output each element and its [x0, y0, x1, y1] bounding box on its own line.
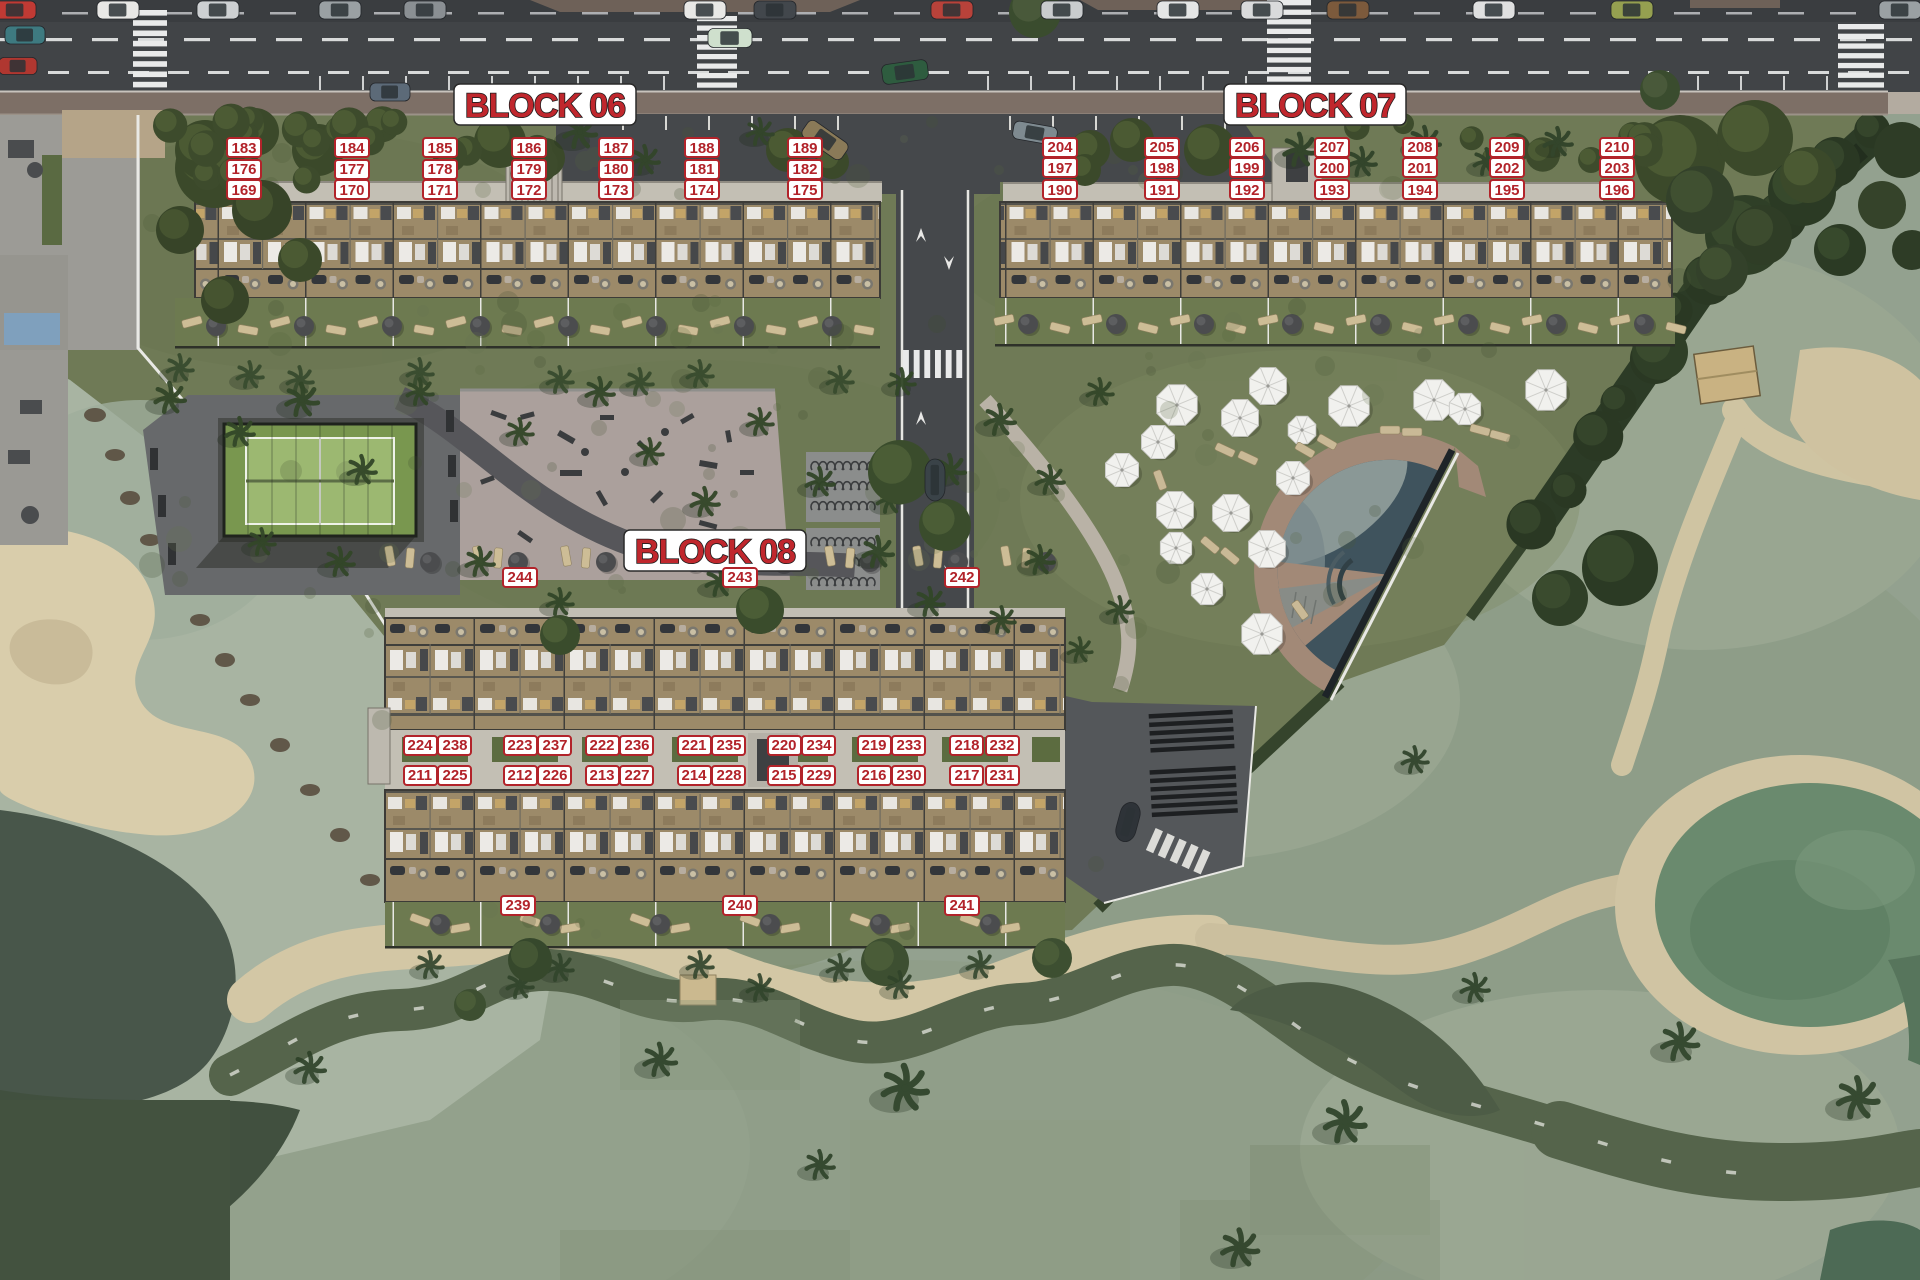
svg-text:241: 241 [949, 897, 974, 914]
svg-text:169: 169 [231, 182, 256, 199]
svg-text:207: 207 [1319, 139, 1344, 156]
svg-text:220: 220 [771, 737, 796, 754]
svg-text:BLOCK 07: BLOCK 07 [1235, 87, 1395, 125]
svg-text:BLOCK 06: BLOCK 06 [465, 87, 625, 125]
svg-text:203: 203 [1604, 160, 1629, 177]
svg-text:214: 214 [681, 767, 707, 784]
svg-text:216: 216 [861, 767, 886, 784]
svg-text:187: 187 [603, 140, 628, 157]
svg-text:196: 196 [1604, 182, 1629, 199]
svg-text:183: 183 [231, 140, 256, 157]
svg-text:223: 223 [507, 737, 532, 754]
svg-text:180: 180 [603, 161, 628, 178]
svg-text:237: 237 [542, 737, 567, 754]
svg-text:175: 175 [792, 182, 817, 199]
svg-text:205: 205 [1149, 139, 1174, 156]
svg-text:236: 236 [624, 737, 649, 754]
svg-text:185: 185 [427, 140, 452, 157]
svg-text:233: 233 [896, 737, 921, 754]
svg-text:181: 181 [689, 161, 714, 178]
svg-text:215: 215 [771, 767, 796, 784]
svg-text:186: 186 [516, 140, 541, 157]
svg-text:BLOCK 08: BLOCK 08 [635, 533, 795, 571]
svg-text:209: 209 [1494, 139, 1519, 156]
svg-text:238: 238 [442, 737, 467, 754]
svg-text:201: 201 [1407, 160, 1432, 177]
svg-text:217: 217 [954, 767, 979, 784]
svg-text:179: 179 [516, 161, 541, 178]
svg-text:204: 204 [1047, 139, 1073, 156]
svg-text:244: 244 [507, 569, 533, 586]
svg-text:200: 200 [1319, 160, 1344, 177]
svg-text:242: 242 [949, 569, 974, 586]
svg-text:239: 239 [505, 897, 530, 914]
svg-text:210: 210 [1604, 139, 1629, 156]
svg-text:188: 188 [689, 140, 714, 157]
svg-text:172: 172 [516, 182, 541, 199]
svg-text:182: 182 [792, 161, 817, 178]
svg-text:221: 221 [681, 737, 706, 754]
svg-text:208: 208 [1407, 139, 1432, 156]
svg-text:192: 192 [1234, 182, 1259, 199]
svg-text:198: 198 [1149, 160, 1174, 177]
svg-text:195: 195 [1494, 182, 1519, 199]
svg-text:199: 199 [1234, 160, 1259, 177]
svg-text:218: 218 [954, 737, 979, 754]
svg-text:184: 184 [339, 140, 365, 157]
svg-text:191: 191 [1149, 182, 1174, 199]
svg-text:226: 226 [542, 767, 567, 784]
svg-text:178: 178 [427, 161, 452, 178]
svg-text:235: 235 [716, 737, 741, 754]
svg-text:229: 229 [806, 767, 831, 784]
svg-text:234: 234 [806, 737, 832, 754]
svg-text:225: 225 [442, 767, 467, 784]
svg-text:173: 173 [603, 182, 628, 199]
svg-text:213: 213 [589, 767, 614, 784]
svg-text:228: 228 [716, 767, 741, 784]
svg-text:211: 211 [408, 767, 432, 784]
svg-text:222: 222 [589, 737, 614, 754]
svg-text:176: 176 [231, 161, 256, 178]
svg-text:227: 227 [624, 767, 649, 784]
svg-text:197: 197 [1047, 160, 1072, 177]
svg-text:206: 206 [1234, 139, 1259, 156]
svg-text:243: 243 [727, 569, 752, 586]
svg-text:177: 177 [339, 161, 364, 178]
svg-text:230: 230 [896, 767, 921, 784]
svg-text:212: 212 [507, 767, 532, 784]
svg-text:171: 171 [427, 182, 452, 199]
svg-text:193: 193 [1319, 182, 1344, 199]
svg-text:219: 219 [861, 737, 886, 754]
svg-text:231: 231 [989, 767, 1014, 784]
svg-text:240: 240 [727, 897, 752, 914]
svg-text:194: 194 [1407, 182, 1433, 199]
svg-text:174: 174 [689, 182, 715, 199]
svg-text:189: 189 [792, 140, 817, 157]
svg-text:202: 202 [1494, 160, 1519, 177]
svg-text:224: 224 [407, 737, 433, 754]
svg-text:170: 170 [339, 182, 364, 199]
svg-text:190: 190 [1047, 182, 1072, 199]
svg-text:232: 232 [989, 737, 1014, 754]
